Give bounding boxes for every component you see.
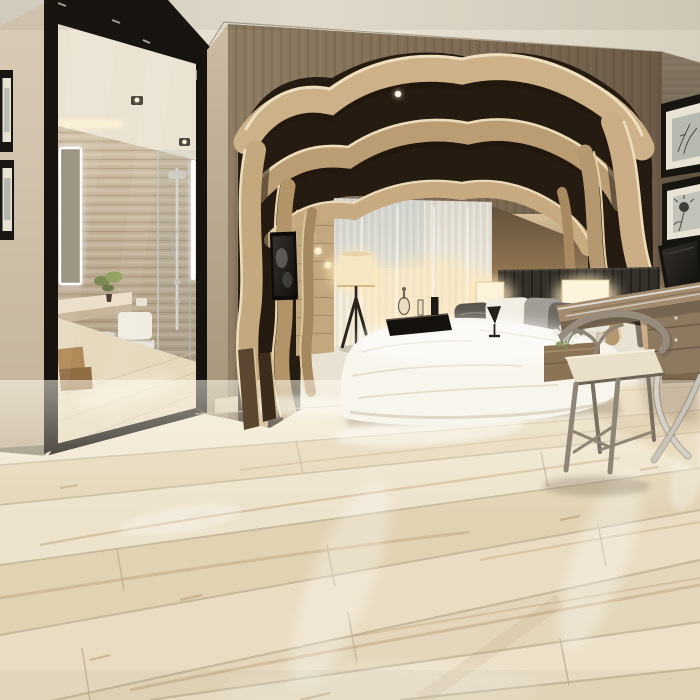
- wall-art-frame-2: [0, 160, 14, 240]
- bedroom-interior-photo: [0, 0, 700, 700]
- shower-head: [168, 171, 186, 179]
- arch-downlight: [395, 91, 401, 97]
- walk-in-shower: [156, 150, 196, 370]
- lamp-shade: [337, 254, 375, 286]
- glass: [418, 300, 423, 315]
- botanical-print-1: [661, 94, 700, 178]
- wall-sliver: [207, 24, 228, 428]
- botanical-print-2: [662, 176, 700, 247]
- bottle: [431, 297, 439, 315]
- shower-led-strip: [191, 160, 196, 280]
- screenshot-root: [0, 0, 700, 700]
- wall-tv: [270, 232, 298, 301]
- chair-shadow: [542, 476, 650, 496]
- wall-art-frame-1: [0, 70, 13, 152]
- wood-plank-floor: [0, 380, 700, 700]
